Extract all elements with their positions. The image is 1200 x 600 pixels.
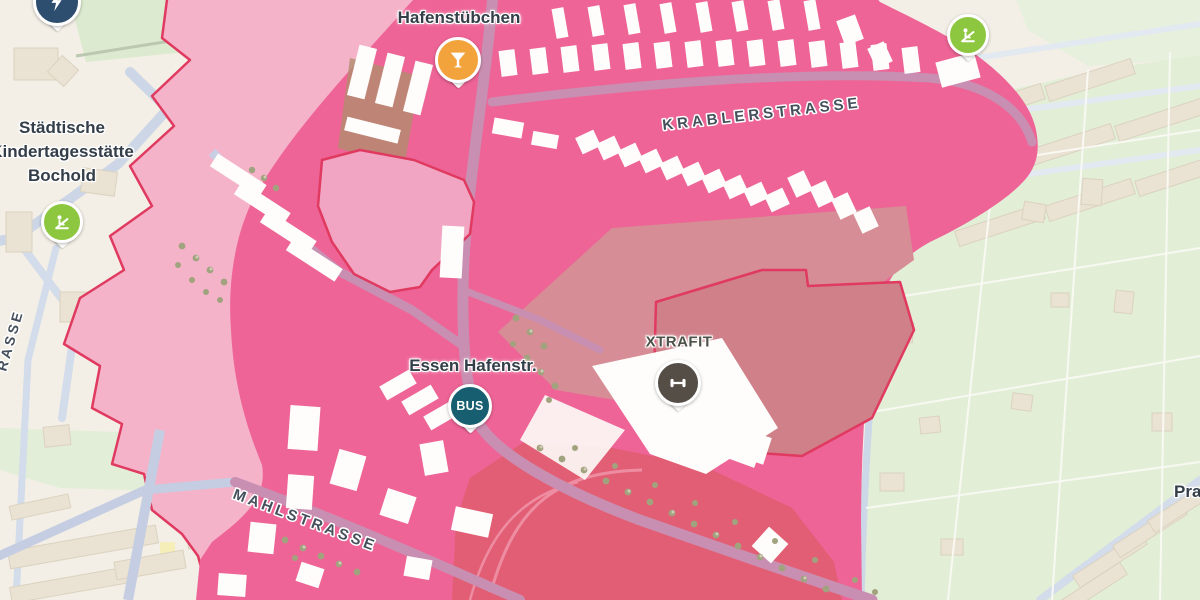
playground-icon <box>41 201 83 243</box>
marker-playground-west[interactable] <box>41 201 83 243</box>
lightning-bolt-icon <box>33 0 81 26</box>
map-canvas[interactable]: KRABLERSTRASSE MAHLSTRASSE RASSE Hafenst… <box>0 0 1200 600</box>
marker-top-left-partial[interactable] <box>33 0 81 26</box>
marker-cocktail[interactable] <box>435 37 481 83</box>
marker-bus-stop[interactable]: BUS <box>448 384 492 428</box>
playground-icon <box>947 14 989 56</box>
marker-gym[interactable] <box>655 360 701 406</box>
dumbbell-icon <box>655 360 701 406</box>
marker-playground-northeast[interactable] <box>947 14 989 56</box>
cocktail-glass-icon <box>435 37 481 83</box>
map-base-layer: KRABLERSTRASSE MAHLSTRASSE RASSE <box>0 0 1200 600</box>
bus-marker-label: BUS <box>456 399 483 413</box>
bus-stop-icon: BUS <box>448 384 492 428</box>
